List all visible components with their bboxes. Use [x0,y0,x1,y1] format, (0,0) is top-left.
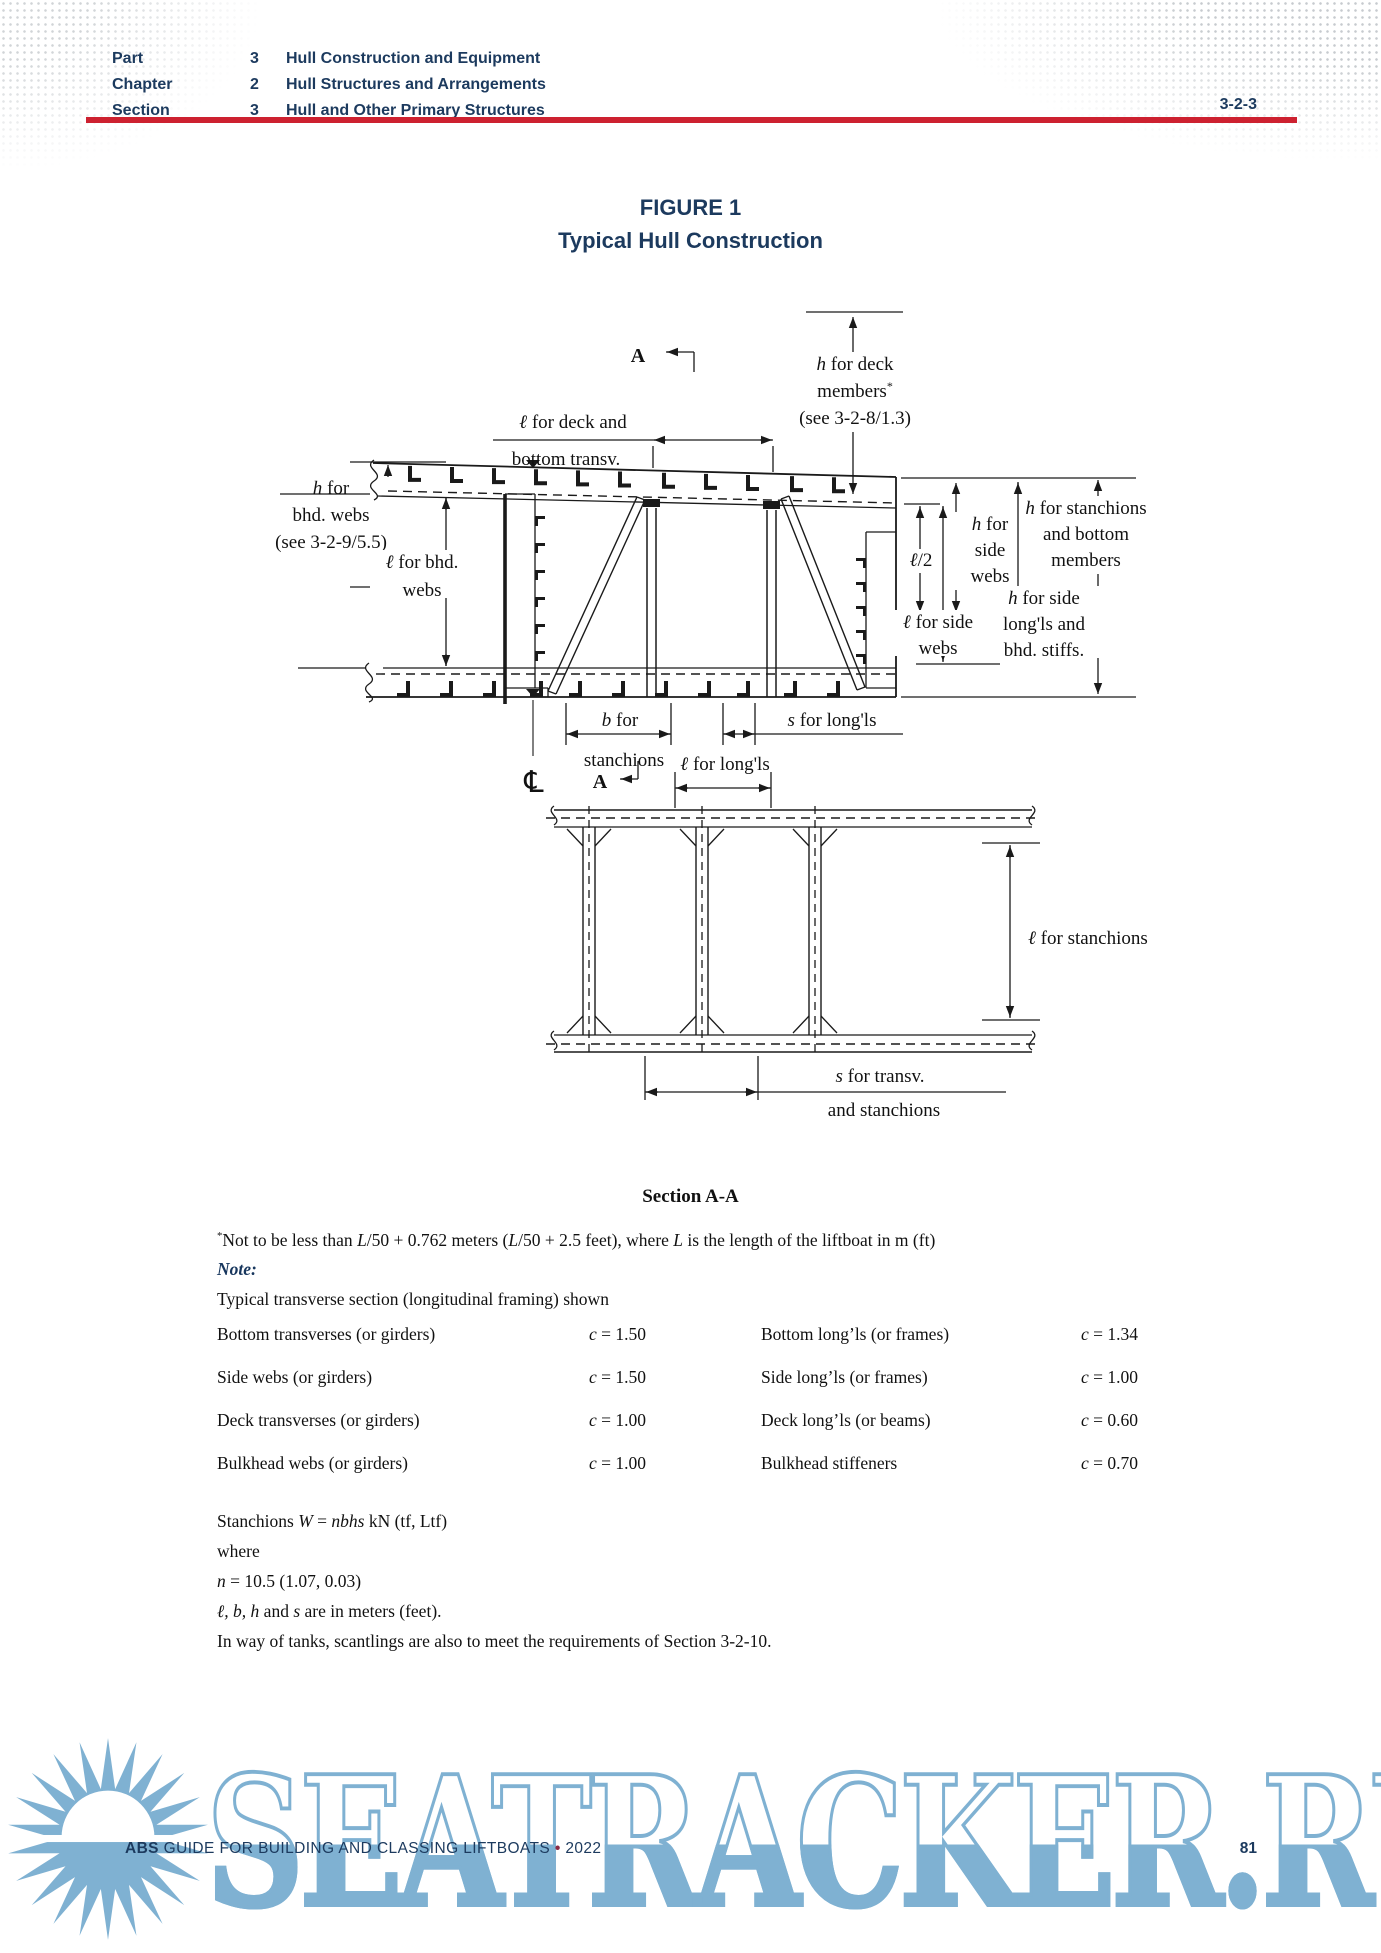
formula-line: ℓ, b, h and s are in meters (feet). [217,1596,1207,1626]
table-row: Side webs (or girders)c = 1.50Side long’… [217,1367,1217,1410]
coefficient-value: c = 1.00 [589,1453,761,1474]
coefficient-table: Bottom transverses (or girders)c = 1.50B… [217,1324,1217,1496]
header-part-title: Hull Construction and Equipment [286,50,540,67]
h-stanchions-bottom: h for stanchionsand bottommembers [1025,498,1146,571]
footer-brand: ABS [125,1840,159,1857]
s-for-transv-1: s for transv. [835,1066,924,1087]
figure-name: Typical Hull Construction [0,224,1381,257]
seatracker-sun-logo [6,1724,210,1950]
member-label: Side long’ls (or frames) [761,1367,1081,1388]
figure-caption: Section A-A [0,1186,1381,1208]
member-label: Bulkhead webs (or girders) [217,1453,589,1474]
halftone-pattern-top-right [911,0,1381,165]
formula-line: where [217,1536,1207,1566]
table-row: Bottom transverses (or girders)c = 1.50B… [217,1324,1217,1367]
b-for-stanchions-1: b for [602,710,639,731]
s-for-longls: s for long'ls [788,710,877,731]
h-side-webs: h forsidewebs [970,514,1009,587]
member-label: Deck transverses (or girders) [217,1410,589,1431]
coefficient-value: c = 1.50 [589,1367,761,1388]
note-text: Typical transverse section (longitudinal… [217,1285,1207,1315]
coefficient-value: c = 1.50 [589,1324,761,1345]
header-chapter-title: Hull Structures and Arrangements [286,76,546,93]
header-chapter-number: 2 [250,76,286,94]
header-row-chapter: Chapter2Hull Structures and Arrangements [112,76,546,94]
h-side-longls: h for sidelong'ls andbhd. stiffs. [1003,588,1086,661]
figure-number: FIGURE 1 [0,191,1381,224]
member-label: Bulkhead stiffeners [761,1453,1081,1474]
note-label: Note: [217,1255,1207,1285]
header-part-label: Part [112,50,250,68]
member-label: Deck long’ls (or beams) [761,1410,1081,1431]
stanchions-formula-block: Stanchions W = nbhs kN (tf, Ltf)wheren =… [217,1506,1207,1656]
h-deck-members: h for deckmembers*(see 3-2-8/1.3) [799,354,911,429]
h-bhd-webs: h forbhd. webs(see 3-2-9/5.5) [275,478,387,553]
centerline-symbol: ℄ [523,765,543,800]
section-code: 3-2-3 [1220,96,1257,114]
l-deck-bottom-transv-1: ℓ for deck and [519,412,627,433]
header-chapter-label: Chapter [112,76,250,94]
figure-notes: *Not to be less than L/50 + 0.762 meters… [217,1222,1207,1314]
coefficient-value: c = 0.60 [1081,1410,1217,1431]
member-label: Side webs (or girders) [217,1367,589,1388]
l-for-stanchions: ℓ for stanchions [1028,928,1148,949]
footnote: *Not to be less than L/50 + 0.762 meters… [217,1222,1207,1255]
l-for-longls: ℓ for long'ls [680,754,769,775]
page-number: 81 [1240,1840,1257,1858]
hull-construction-diagram: Ah for deckmembers*(see 3-2-8/1.3)ℓ for … [268,290,1183,1130]
l-deck-bottom-transv-2: bottom transv. [512,449,621,470]
member-label: Bottom transverses (or girders) [217,1324,589,1345]
s-for-transv-2: and stanchions [828,1100,940,1121]
member-label: Bottom long’ls (or frames) [761,1324,1081,1345]
header-rule [86,117,1297,123]
formula-line: In way of tanks, scantlings are also to … [217,1626,1207,1656]
header-row-part: Part3Hull Construction and Equipment [112,50,540,68]
section-arrow-a-top: A [631,345,646,367]
formula-line: n = 10.5 (1.07, 0.03) [217,1566,1207,1596]
b-for-stanchions-2: stanchions [584,750,664,771]
figure-title: FIGURE 1 Typical Hull Construction [0,191,1381,257]
footer-year: 2022 [561,1840,602,1857]
coefficient-value: c = 0.70 [1081,1453,1217,1474]
l-over-2: ℓ/2 [910,550,933,571]
footer: ABS GUIDE FOR BUILDING AND CLASSING LIFT… [125,1840,601,1858]
coefficient-value: c = 1.00 [589,1410,761,1431]
footer-text: GUIDE FOR BUILDING AND CLASSING LIFTBOAT… [159,1840,555,1857]
formula-line: Stanchions W = nbhs kN (tf, Ltf) [217,1506,1207,1536]
header-part-number: 3 [250,50,286,68]
document-page: Part3Hull Construction and Equipment Cha… [0,0,1381,1953]
section-arrow-a-bottom: A [593,771,608,793]
coefficient-value: c = 1.34 [1081,1324,1217,1345]
table-row: Deck transverses (or girders)c = 1.00Dec… [217,1410,1217,1453]
table-row: Bulkhead webs (or girders)c = 1.00Bulkhe… [217,1453,1217,1496]
coefficient-value: c = 1.00 [1081,1367,1217,1388]
